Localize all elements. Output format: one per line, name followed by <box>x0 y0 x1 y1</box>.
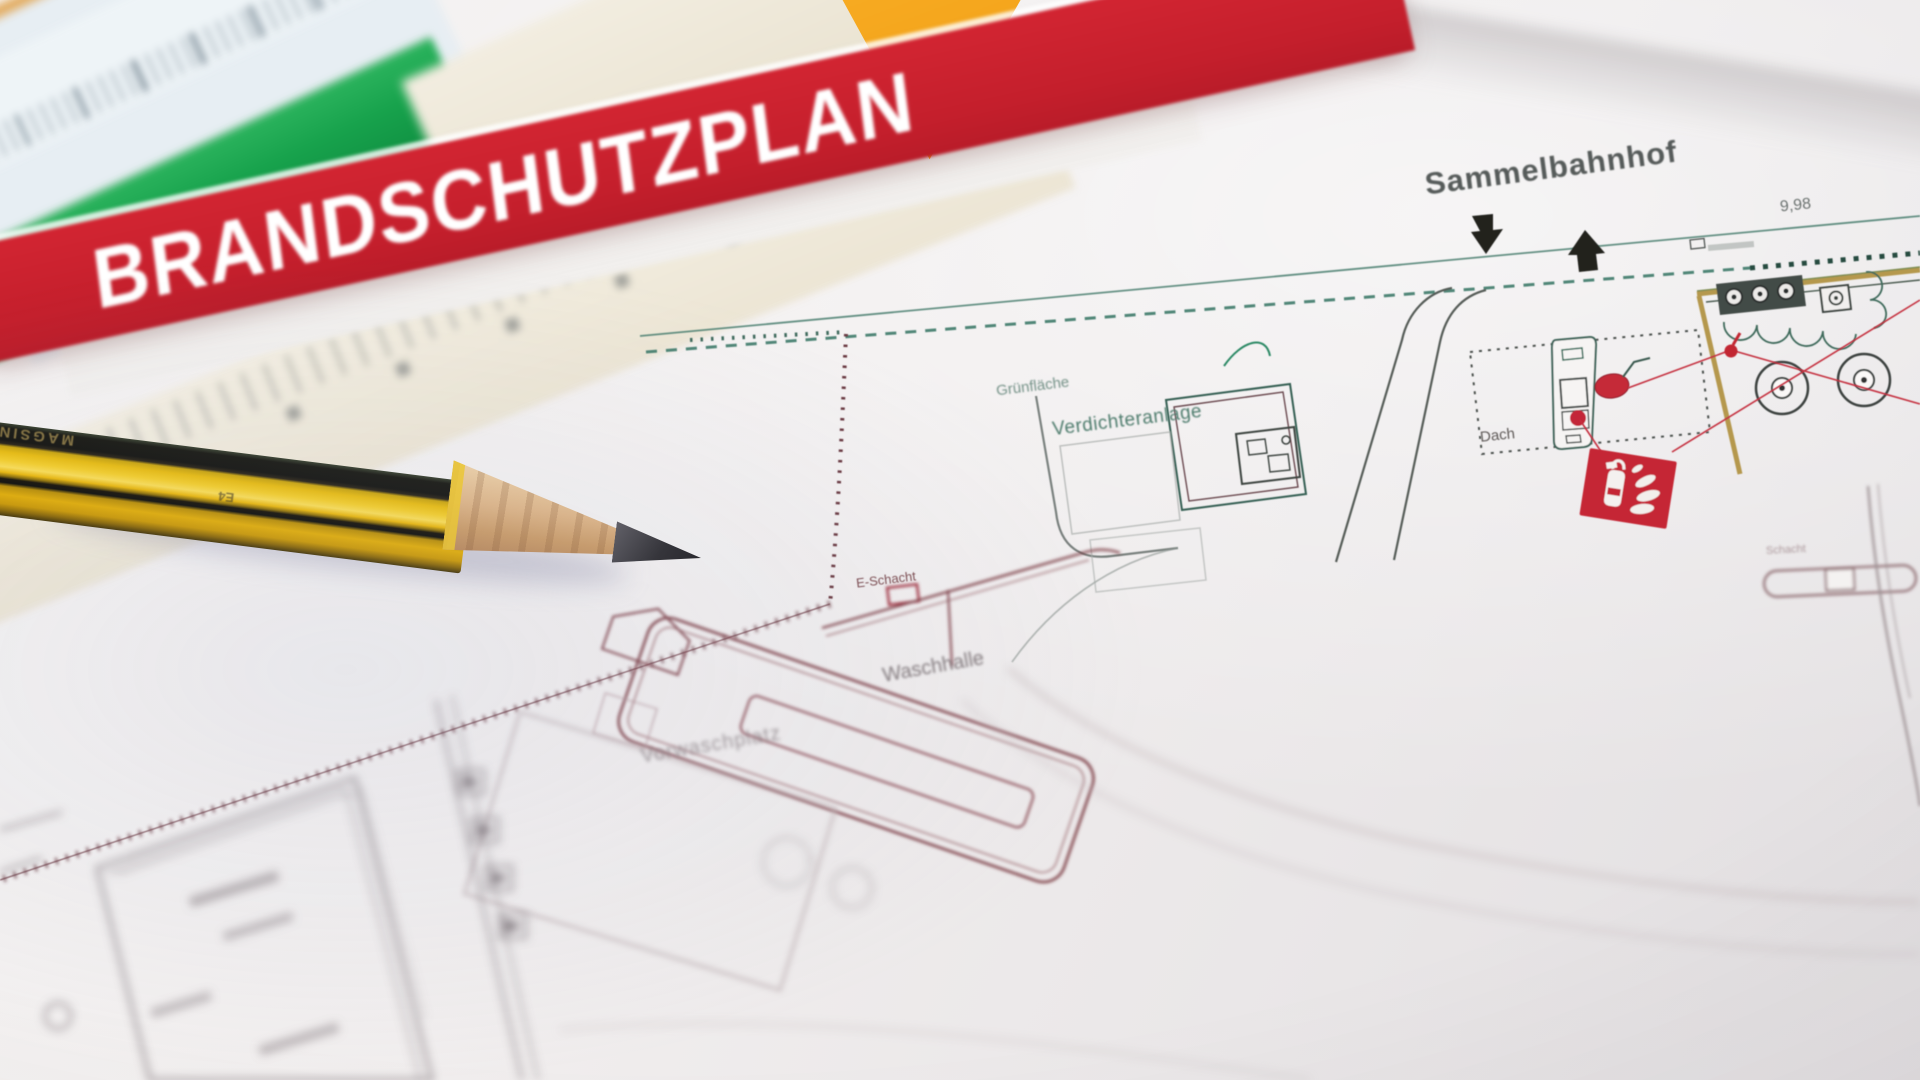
right-shaft <box>1764 484 1920 806</box>
boundary-lines <box>0 334 846 880</box>
arrow-icons <box>1471 214 1605 272</box>
gully-circle <box>832 868 872 908</box>
compressor-room <box>1060 343 1306 592</box>
gully-circle <box>763 838 811 886</box>
drain-symbols <box>458 770 526 938</box>
marker-dot-icon <box>1570 410 1586 426</box>
location-pin-icon <box>1725 333 1741 358</box>
arrow-down-icon <box>1471 214 1503 254</box>
photo-scene: BRANDSCHUTZPLAN <box>0 0 1920 1080</box>
pencil-grade-text: E4 <box>217 489 235 506</box>
label-schacht: Schacht <box>1766 543 1806 557</box>
station-building <box>1690 239 1920 475</box>
wash-hall-complex <box>577 550 1120 888</box>
fire-extinguisher-icon <box>1579 448 1677 529</box>
arrow-up-icon <box>1568 230 1605 272</box>
label-dimension: 9,98 <box>1779 195 1812 216</box>
lower-compound <box>0 696 872 1080</box>
label-dach: Dach <box>1479 425 1516 446</box>
